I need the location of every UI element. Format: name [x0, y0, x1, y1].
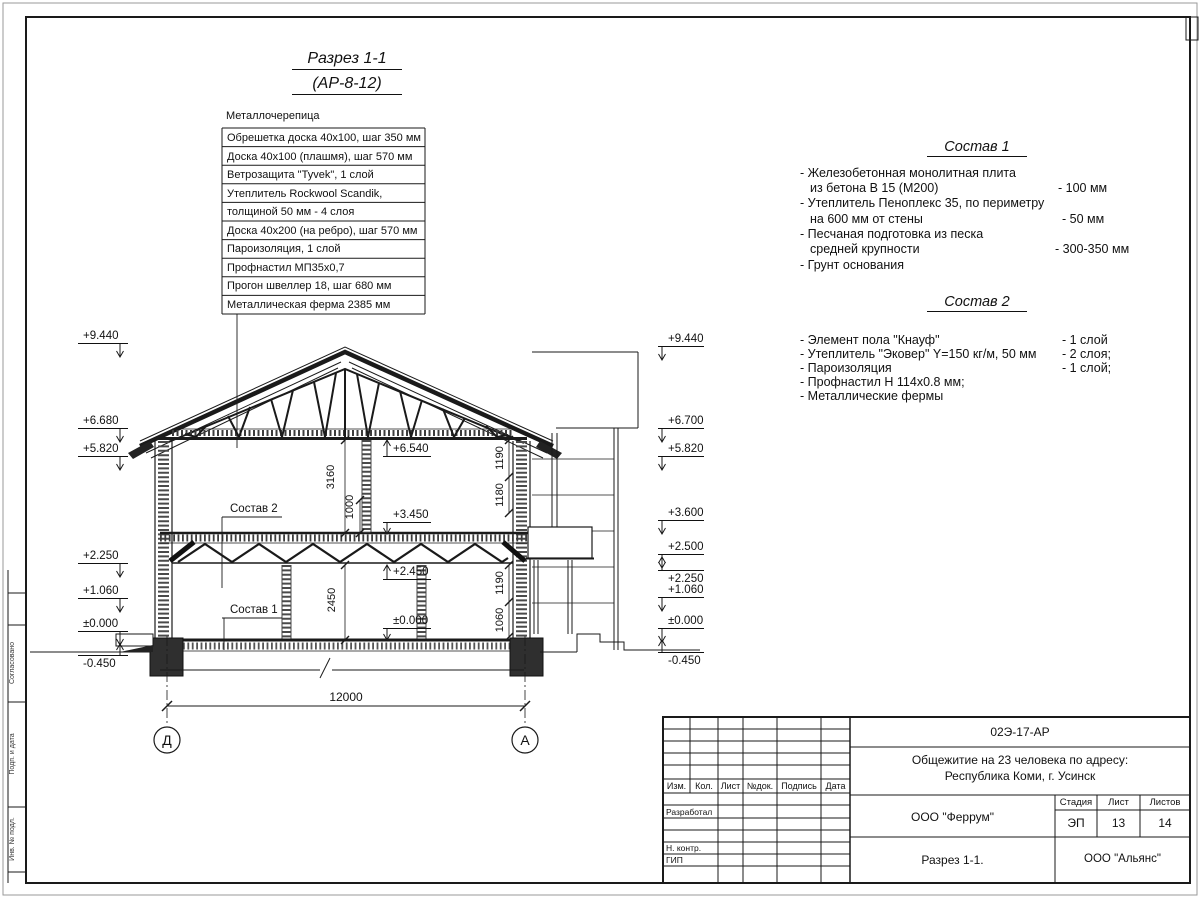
background-annex — [526, 352, 700, 652]
stamp-h-date: Дата — [821, 781, 850, 791]
sostav2-value: - 1 слой; — [1062, 361, 1111, 375]
drawing-subtitle: (АР-8-12) — [292, 75, 402, 95]
elevation-mark: +1.060 — [658, 584, 704, 598]
dim-1190: 1190 — [494, 438, 508, 478]
dim-1180: 1180 — [494, 475, 508, 515]
floor-structure — [160, 533, 528, 563]
sostav2-line: - Металлические фермы — [800, 389, 943, 403]
stamp-h-sign: Подпись — [777, 781, 821, 791]
elevation-mark: +9.440 — [78, 330, 128, 344]
dim-1190b: 1190 — [494, 563, 508, 603]
dim-2450: 2450 — [326, 580, 340, 620]
sostav1-value: - 300-350 мм — [1055, 242, 1129, 256]
frame-label-podp-data: Подп. и дата — [9, 719, 23, 789]
sostav1-line: - Песчаная подготовка из песка — [800, 227, 983, 241]
dim-3160: 3160 — [325, 457, 339, 497]
elevation-mark: +6.680 — [78, 415, 128, 429]
elevation-mark: ±0.000 — [383, 615, 431, 629]
elevation-mark: +2.250 — [658, 570, 704, 585]
sostav1-line: - Железобетонная монолитная плита — [800, 166, 1016, 180]
sostav2-value: - 1 слой — [1062, 333, 1108, 347]
elevation-mark: +3.600 — [658, 507, 704, 521]
sostav1-line: из бетона В 15 (М200) — [810, 181, 938, 195]
elevation-mark: +9.440 — [658, 333, 704, 347]
stamp-drawing-name: Разрез 1-1. — [850, 853, 1055, 867]
frame-label-inv-podl: Инв. № подл. — [9, 804, 23, 874]
stamp-project-line2: Республика Коми, г. Усинск — [850, 769, 1190, 783]
drawing-title: Разрез 1-1 — [292, 50, 402, 70]
sostav2-heading: Состав 2 — [927, 294, 1027, 312]
elevation-mark: +6.700 — [658, 415, 704, 429]
elevation-mark: +2.250 — [78, 550, 128, 564]
stamp-sheets-value: 14 — [1140, 816, 1190, 830]
callout-row: толщиной 50 мм - 4 слоя — [227, 203, 423, 221]
sostav1-ref-label: Состав 1 — [230, 604, 278, 616]
sostav2-line: - Элемент пола "Кнауф" — [800, 333, 940, 347]
stamp-role-ncontrol: Н. контр. — [666, 843, 701, 853]
stamp-project-line1: Общежитие на 23 человека по адресу: — [850, 753, 1190, 767]
callout-row: Утеплитель Rockwool Scandik, — [227, 185, 423, 203]
elevation-mark: -0.450 — [78, 655, 128, 670]
sostav2-ref-label: Состав 2 — [230, 503, 278, 515]
stamp-h-list: Лист — [718, 781, 743, 791]
sostav2-line: - Пароизоляция — [800, 361, 892, 375]
callout-row: Профнастил МП35х0,7 — [227, 259, 423, 277]
callout-header: Металлочерепица — [226, 110, 320, 122]
dim-1000: 1000 — [344, 487, 358, 527]
stamp-contractor: ООО "Альянс" — [1055, 853, 1190, 865]
sostav1-line: - Утеплитель Пеноплекс 35, по периметру — [800, 196, 1044, 210]
frame-label-soglasovano: Согласовано — [9, 628, 23, 698]
axis-bubble-d: Д — [153, 732, 181, 748]
span-dimension: 12000 — [316, 690, 376, 704]
stamp-sheets-label: Листов — [1140, 797, 1190, 808]
sostav1-value: - 50 мм — [1062, 212, 1104, 226]
elevation-mark: -0.450 — [658, 652, 704, 667]
axis-bubble-a: А — [511, 732, 539, 748]
elevation-arrows — [117, 344, 666, 655]
elevation-mark: +2.450 — [383, 566, 431, 580]
callout-row: Доска 40х100 (плашмя), шаг 570 мм — [227, 148, 423, 166]
callout-row: Пароизоляция, 1 слой — [227, 240, 423, 258]
stamp-stage-value: ЭП — [1055, 816, 1097, 830]
stamp-sheet-label: Лист — [1097, 797, 1140, 808]
stamp-role-developer: Разработал — [666, 807, 712, 817]
stamp-sheet-value: 13 — [1097, 816, 1140, 830]
elevation-mark: +1.060 — [78, 585, 128, 599]
elevation-mark: +5.820 — [658, 443, 704, 457]
sostav2-value: - 2 слоя; — [1062, 347, 1111, 361]
sostav2-line: - Профнастил Н 114х0.8 мм; — [800, 375, 965, 389]
callout-row: Доска 40х200 (на ребро), шаг 570 мм — [227, 222, 423, 240]
stamp-stage-label: Стадия — [1055, 797, 1097, 808]
stamp-role-gip: ГИП — [666, 855, 683, 865]
drawing-sheet: Разрез 1-1 (АР-8-12) Металлочерепица Обр… — [0, 0, 1200, 900]
stamp-h-kol: Кол. — [690, 781, 718, 791]
elevation-mark: ±0.000 — [658, 615, 704, 629]
callout-row: Металлическая ферма 2385 мм — [227, 296, 423, 314]
stamp-h-doc: №док. — [743, 781, 777, 791]
callout-row: Обрешетка доска 40х100, шаг 350 мм — [227, 129, 423, 147]
stamp-doc-code: 02Э-17-АР — [850, 725, 1190, 739]
sostav1-heading: Состав 1 — [927, 139, 1027, 157]
sostav1-line: средней крупности — [810, 242, 920, 256]
sostav2-line: - Утеплитель "Эковер" Y=150 кг/м, 50 мм — [800, 347, 1036, 361]
stamp-h-izm: Изм. — [663, 781, 690, 791]
sostav1-line: на 600 мм от стены — [810, 212, 923, 226]
callout-row: Ветрозащита "Tyvek", 1 слой — [227, 166, 423, 184]
elevation-mark: +2.500 — [658, 541, 704, 555]
stamp-org: ООО "Феррум" — [850, 810, 1055, 824]
elevation-mark: +5.820 — [78, 443, 128, 457]
elevation-mark: ±0.000 — [78, 618, 128, 632]
sostav1-line: - Грунт основания — [800, 258, 904, 272]
dim-1060: 1060 — [494, 600, 508, 640]
callout-row: Прогон швеллер 18, шаг 680 мм — [227, 277, 423, 295]
elevation-mark: +3.450 — [383, 509, 431, 523]
elevation-mark: +6.540 — [383, 443, 431, 457]
sostav1-value: - 100 мм — [1058, 181, 1107, 195]
